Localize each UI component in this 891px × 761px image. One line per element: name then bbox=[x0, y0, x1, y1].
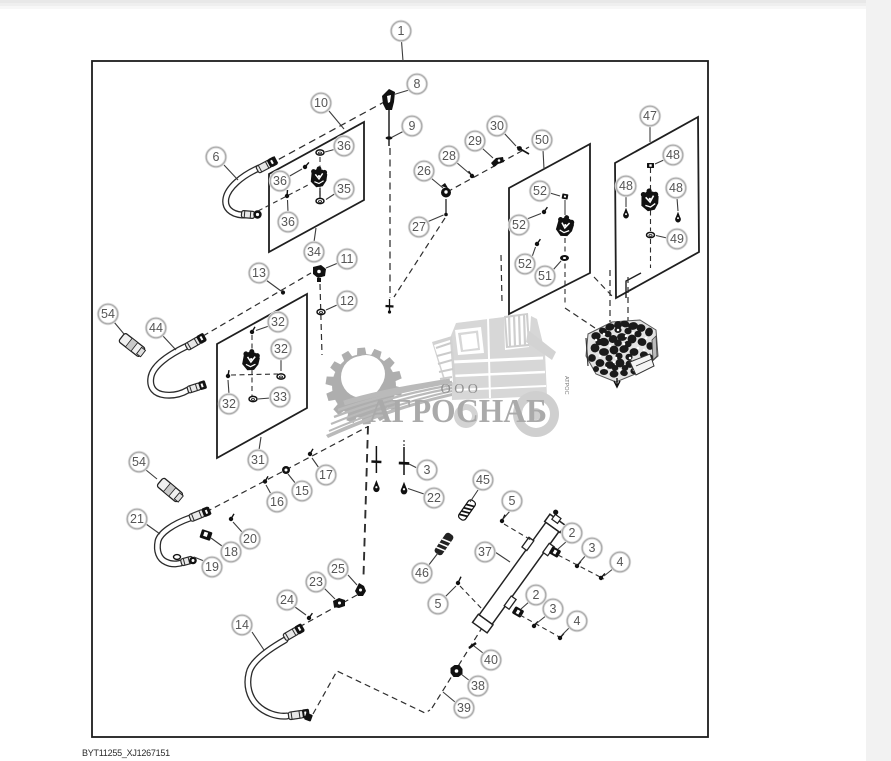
svg-text:6: 6 bbox=[213, 150, 220, 164]
svg-text:14: 14 bbox=[235, 618, 249, 632]
svg-text:ATPOC: ATPOC bbox=[563, 376, 569, 395]
svg-text:44: 44 bbox=[149, 321, 163, 335]
svg-text:34: 34 bbox=[307, 245, 321, 259]
svg-text:27: 27 bbox=[412, 220, 426, 234]
svg-text:5: 5 bbox=[435, 597, 442, 611]
svg-text:28: 28 bbox=[442, 149, 456, 163]
svg-text:54: 54 bbox=[101, 307, 115, 321]
svg-text:35: 35 bbox=[337, 182, 351, 196]
svg-text:50: 50 bbox=[535, 133, 549, 147]
svg-text:48: 48 bbox=[619, 179, 633, 193]
svg-text:20: 20 bbox=[243, 532, 257, 546]
svg-text:45: 45 bbox=[476, 473, 490, 487]
svg-text:52: 52 bbox=[533, 184, 547, 198]
svg-text:12: 12 bbox=[340, 294, 354, 308]
svg-text:23: 23 bbox=[309, 575, 323, 589]
svg-text:52: 52 bbox=[518, 257, 532, 271]
svg-text:36: 36 bbox=[281, 215, 295, 229]
svg-text:1: 1 bbox=[398, 24, 405, 38]
svg-text:38: 38 bbox=[471, 679, 485, 693]
svg-text:13: 13 bbox=[252, 266, 266, 280]
svg-text:2: 2 bbox=[533, 588, 540, 602]
svg-text:17: 17 bbox=[319, 468, 333, 482]
svg-text:3: 3 bbox=[424, 463, 431, 477]
svg-text:16: 16 bbox=[270, 495, 284, 509]
svg-text:32: 32 bbox=[271, 315, 285, 329]
svg-text:22: 22 bbox=[427, 491, 441, 505]
svg-text:10: 10 bbox=[314, 96, 328, 110]
svg-text:15: 15 bbox=[295, 484, 309, 498]
svg-text:49: 49 bbox=[670, 232, 684, 246]
svg-text:51: 51 bbox=[538, 269, 552, 283]
svg-text:5: 5 bbox=[509, 494, 516, 508]
svg-text:25: 25 bbox=[331, 562, 345, 576]
svg-text:48: 48 bbox=[669, 181, 683, 195]
svg-text:47: 47 bbox=[643, 109, 657, 123]
svg-text:30: 30 bbox=[490, 119, 504, 133]
svg-text:18: 18 bbox=[224, 545, 238, 559]
svg-text:4: 4 bbox=[574, 614, 581, 628]
svg-text:36: 36 bbox=[337, 139, 351, 153]
svg-text:3: 3 bbox=[550, 602, 557, 616]
svg-text:3: 3 bbox=[589, 541, 596, 555]
svg-text:8: 8 bbox=[414, 77, 421, 91]
svg-text:31: 31 bbox=[251, 453, 265, 467]
svg-text:29: 29 bbox=[468, 134, 482, 148]
svg-text:52: 52 bbox=[512, 218, 526, 232]
svg-text:54: 54 bbox=[132, 455, 146, 469]
svg-text:АГРОСНАБ: АГРОСНАБ bbox=[369, 393, 547, 430]
svg-text:4: 4 bbox=[617, 555, 624, 569]
svg-text:11: 11 bbox=[341, 252, 354, 266]
svg-text:39: 39 bbox=[457, 701, 471, 715]
svg-text:21: 21 bbox=[130, 512, 144, 526]
svg-text:24: 24 bbox=[280, 593, 294, 607]
svg-text:40: 40 bbox=[484, 653, 498, 667]
svg-text:33: 33 bbox=[273, 390, 287, 404]
svg-text:48: 48 bbox=[666, 148, 680, 162]
svg-text:2: 2 bbox=[569, 526, 576, 540]
svg-text:37: 37 bbox=[478, 545, 492, 559]
svg-text:BYT11255_XJ1267151: BYT11255_XJ1267151 bbox=[82, 748, 170, 758]
svg-text:19: 19 bbox=[205, 560, 219, 574]
svg-text:46: 46 bbox=[415, 566, 429, 580]
svg-text:32: 32 bbox=[222, 397, 236, 411]
svg-text:26: 26 bbox=[417, 164, 431, 178]
svg-text:9: 9 bbox=[409, 119, 416, 133]
svg-text:36: 36 bbox=[273, 174, 287, 188]
svg-text:32: 32 bbox=[274, 342, 288, 356]
